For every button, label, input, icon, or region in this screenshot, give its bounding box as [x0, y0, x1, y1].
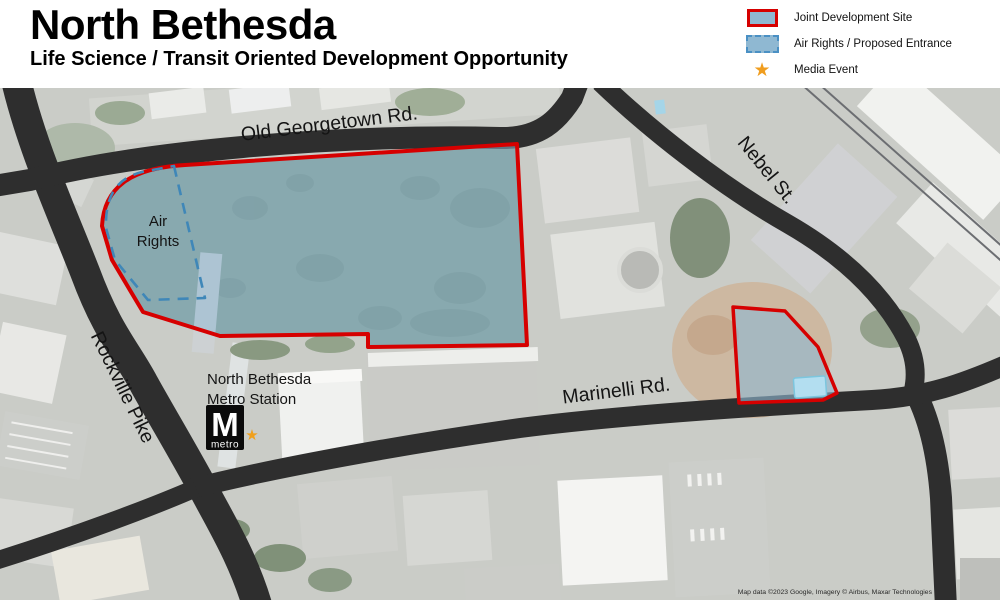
legend-item-joint-development: Joint Development Site [738, 5, 996, 31]
media-event-star: ★ [245, 427, 258, 444]
air-rights-label-line1: Air [149, 213, 167, 230]
joint-development-swatch-icon [738, 9, 786, 27]
legend: Joint Development Site Air Rights / Prop… [738, 5, 996, 83]
flyer-page: North Bethesda Life Science / Transit Or… [0, 0, 1000, 600]
metro-logo-word: metro [211, 440, 239, 451]
proposed-entrance-patch [793, 376, 826, 398]
air-rights-swatch-icon [738, 35, 786, 53]
legend-label: Media Event [786, 64, 858, 76]
air-rights-label-line2: Rights [137, 233, 180, 250]
satellite-map: Old Georgetown Rd. Nebel St. Rockville P… [0, 88, 1000, 600]
legend-item-air-rights: Air Rights / Proposed Entrance [738, 31, 996, 57]
station-name-line1: North Bethesda [207, 371, 312, 388]
legend-item-media-event: ★ Media Event [738, 57, 996, 83]
legend-label: Air Rights / Proposed Entrance [786, 38, 952, 50]
map-attribution: Map data ©2023 Google, Imagery © Airbus,… [738, 588, 933, 596]
metro-logo-letter: M [211, 406, 239, 443]
legend-label: Joint Development Site [786, 12, 912, 24]
media-event-star-icon: ★ [738, 61, 786, 80]
